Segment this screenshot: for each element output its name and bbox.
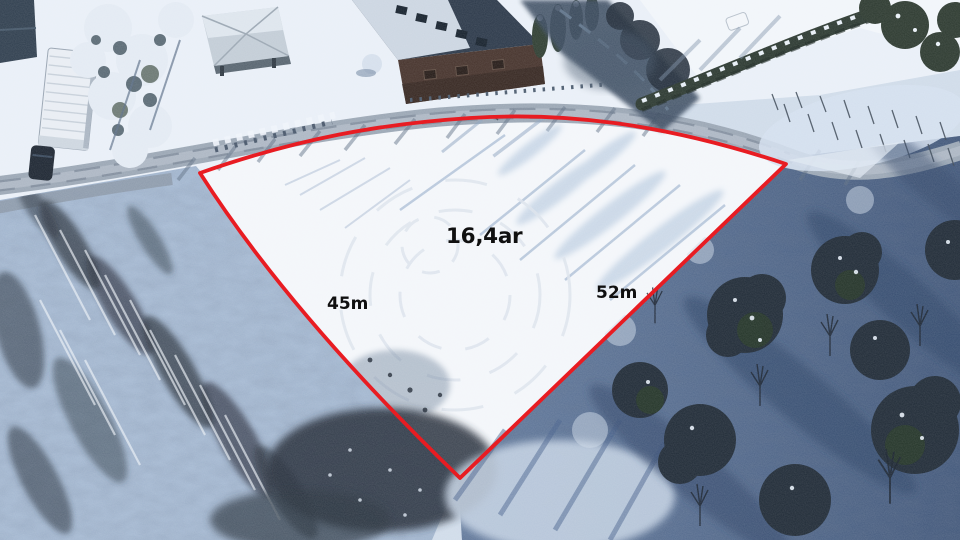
left-dimension-label: 45m bbox=[327, 294, 368, 314]
photo-canvas: 16,4ar 45m 52m bbox=[0, 0, 960, 540]
right-dimension-label: 52m bbox=[596, 283, 637, 303]
aerial-plot-photo: 16,4ar 45m 52m bbox=[0, 0, 960, 540]
area-label: 16,4ar bbox=[446, 224, 523, 249]
